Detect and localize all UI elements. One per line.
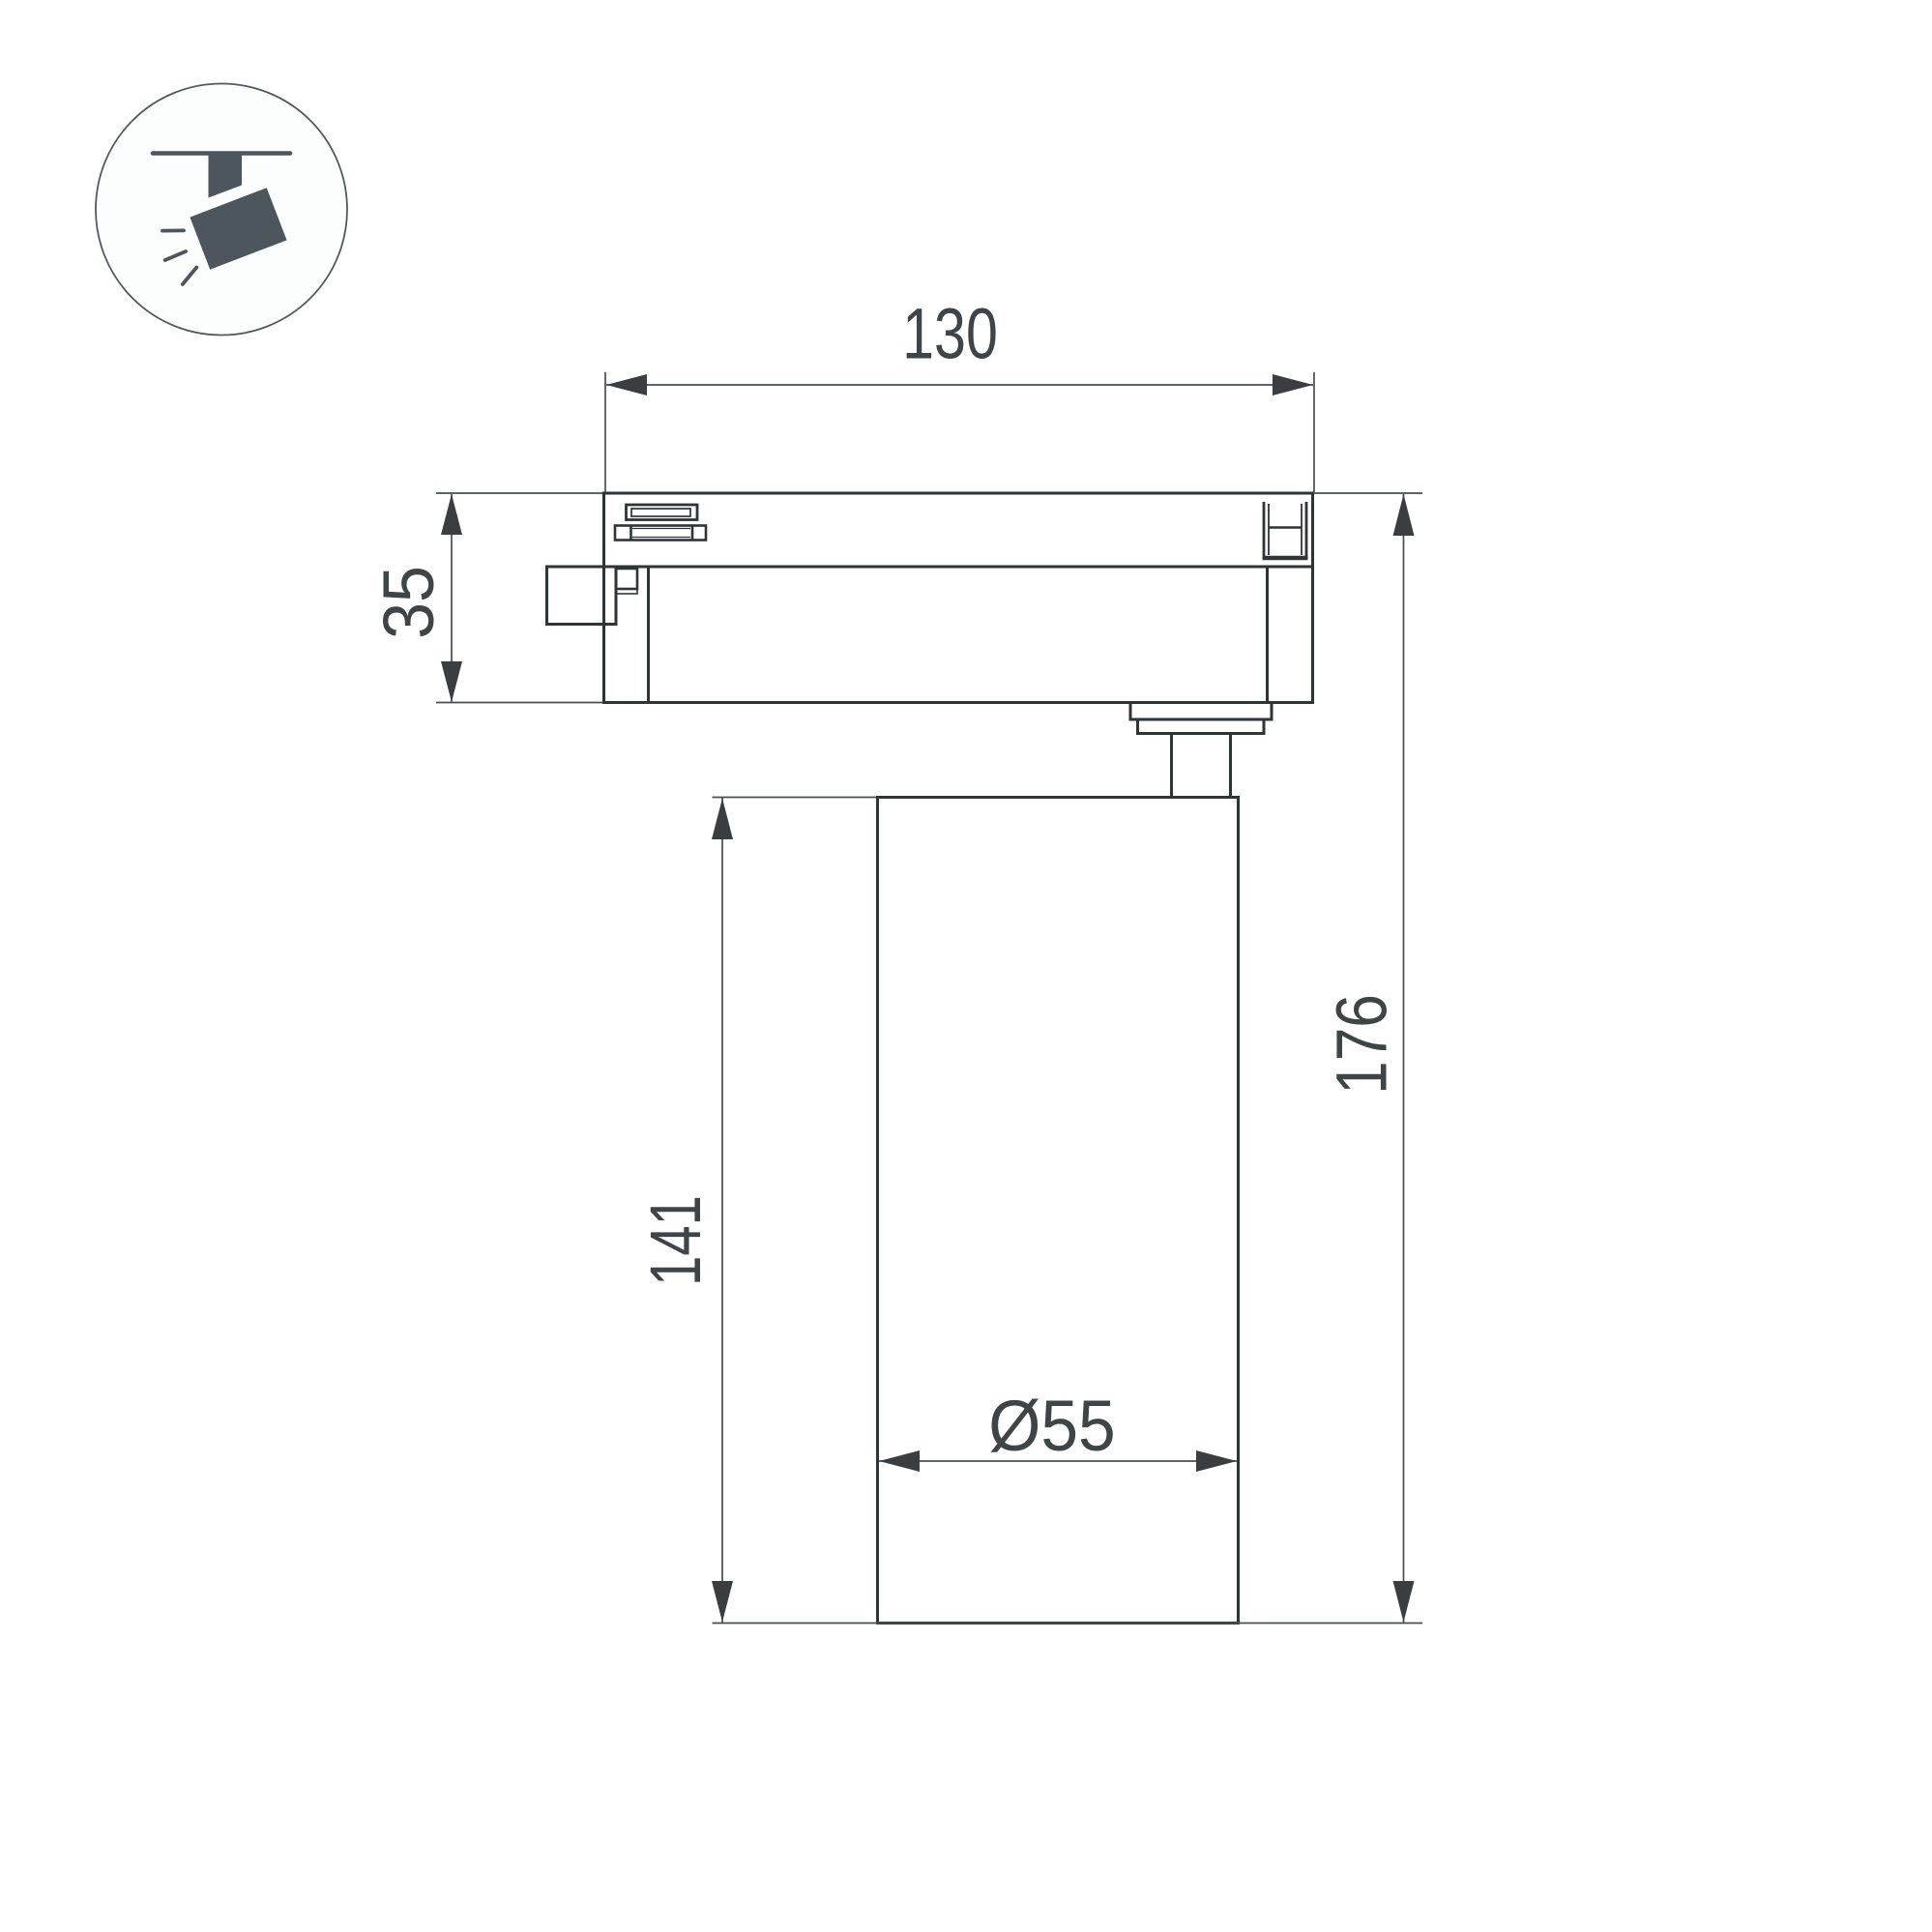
svg-text:35: 35 (369, 566, 449, 639)
svg-text:141: 141 (636, 1195, 716, 1286)
svg-text:130: 130 (902, 294, 998, 374)
svg-text:Ø55: Ø55 (988, 1387, 1115, 1466)
svg-text:176: 176 (1322, 994, 1401, 1095)
